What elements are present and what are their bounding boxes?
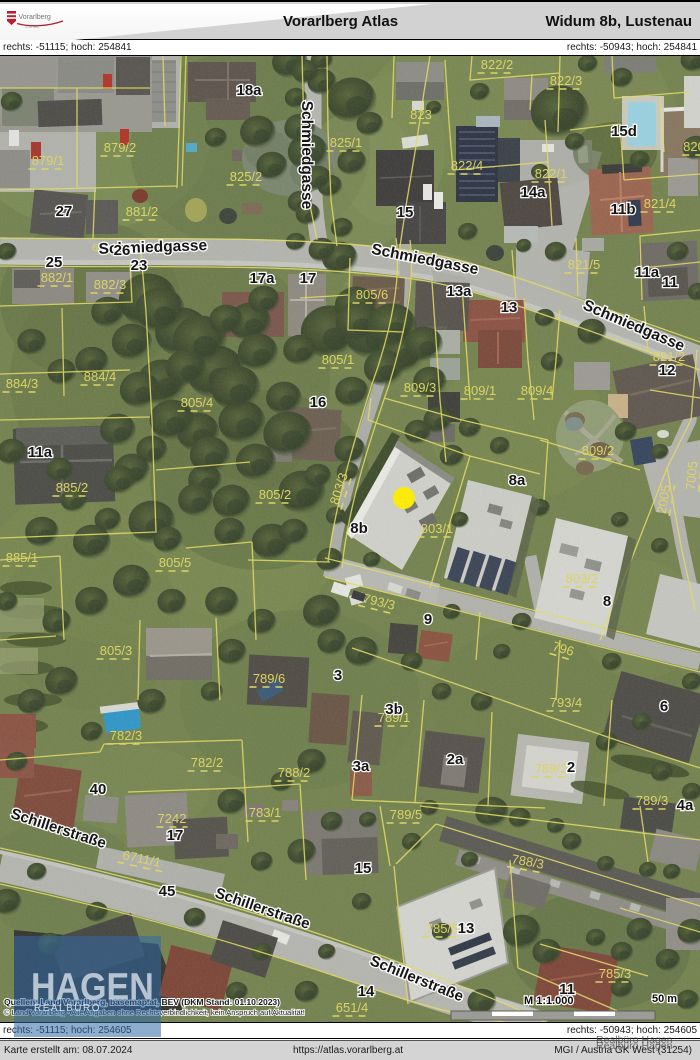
svg-text:unser land: unser land	[25, 25, 39, 29]
svg-text:Vorarlberg: Vorarlberg	[19, 14, 51, 21]
svg-text:M 1:1.000: M 1:1.000	[524, 995, 574, 1007]
svg-text:50 m: 50 m	[652, 993, 677, 1005]
